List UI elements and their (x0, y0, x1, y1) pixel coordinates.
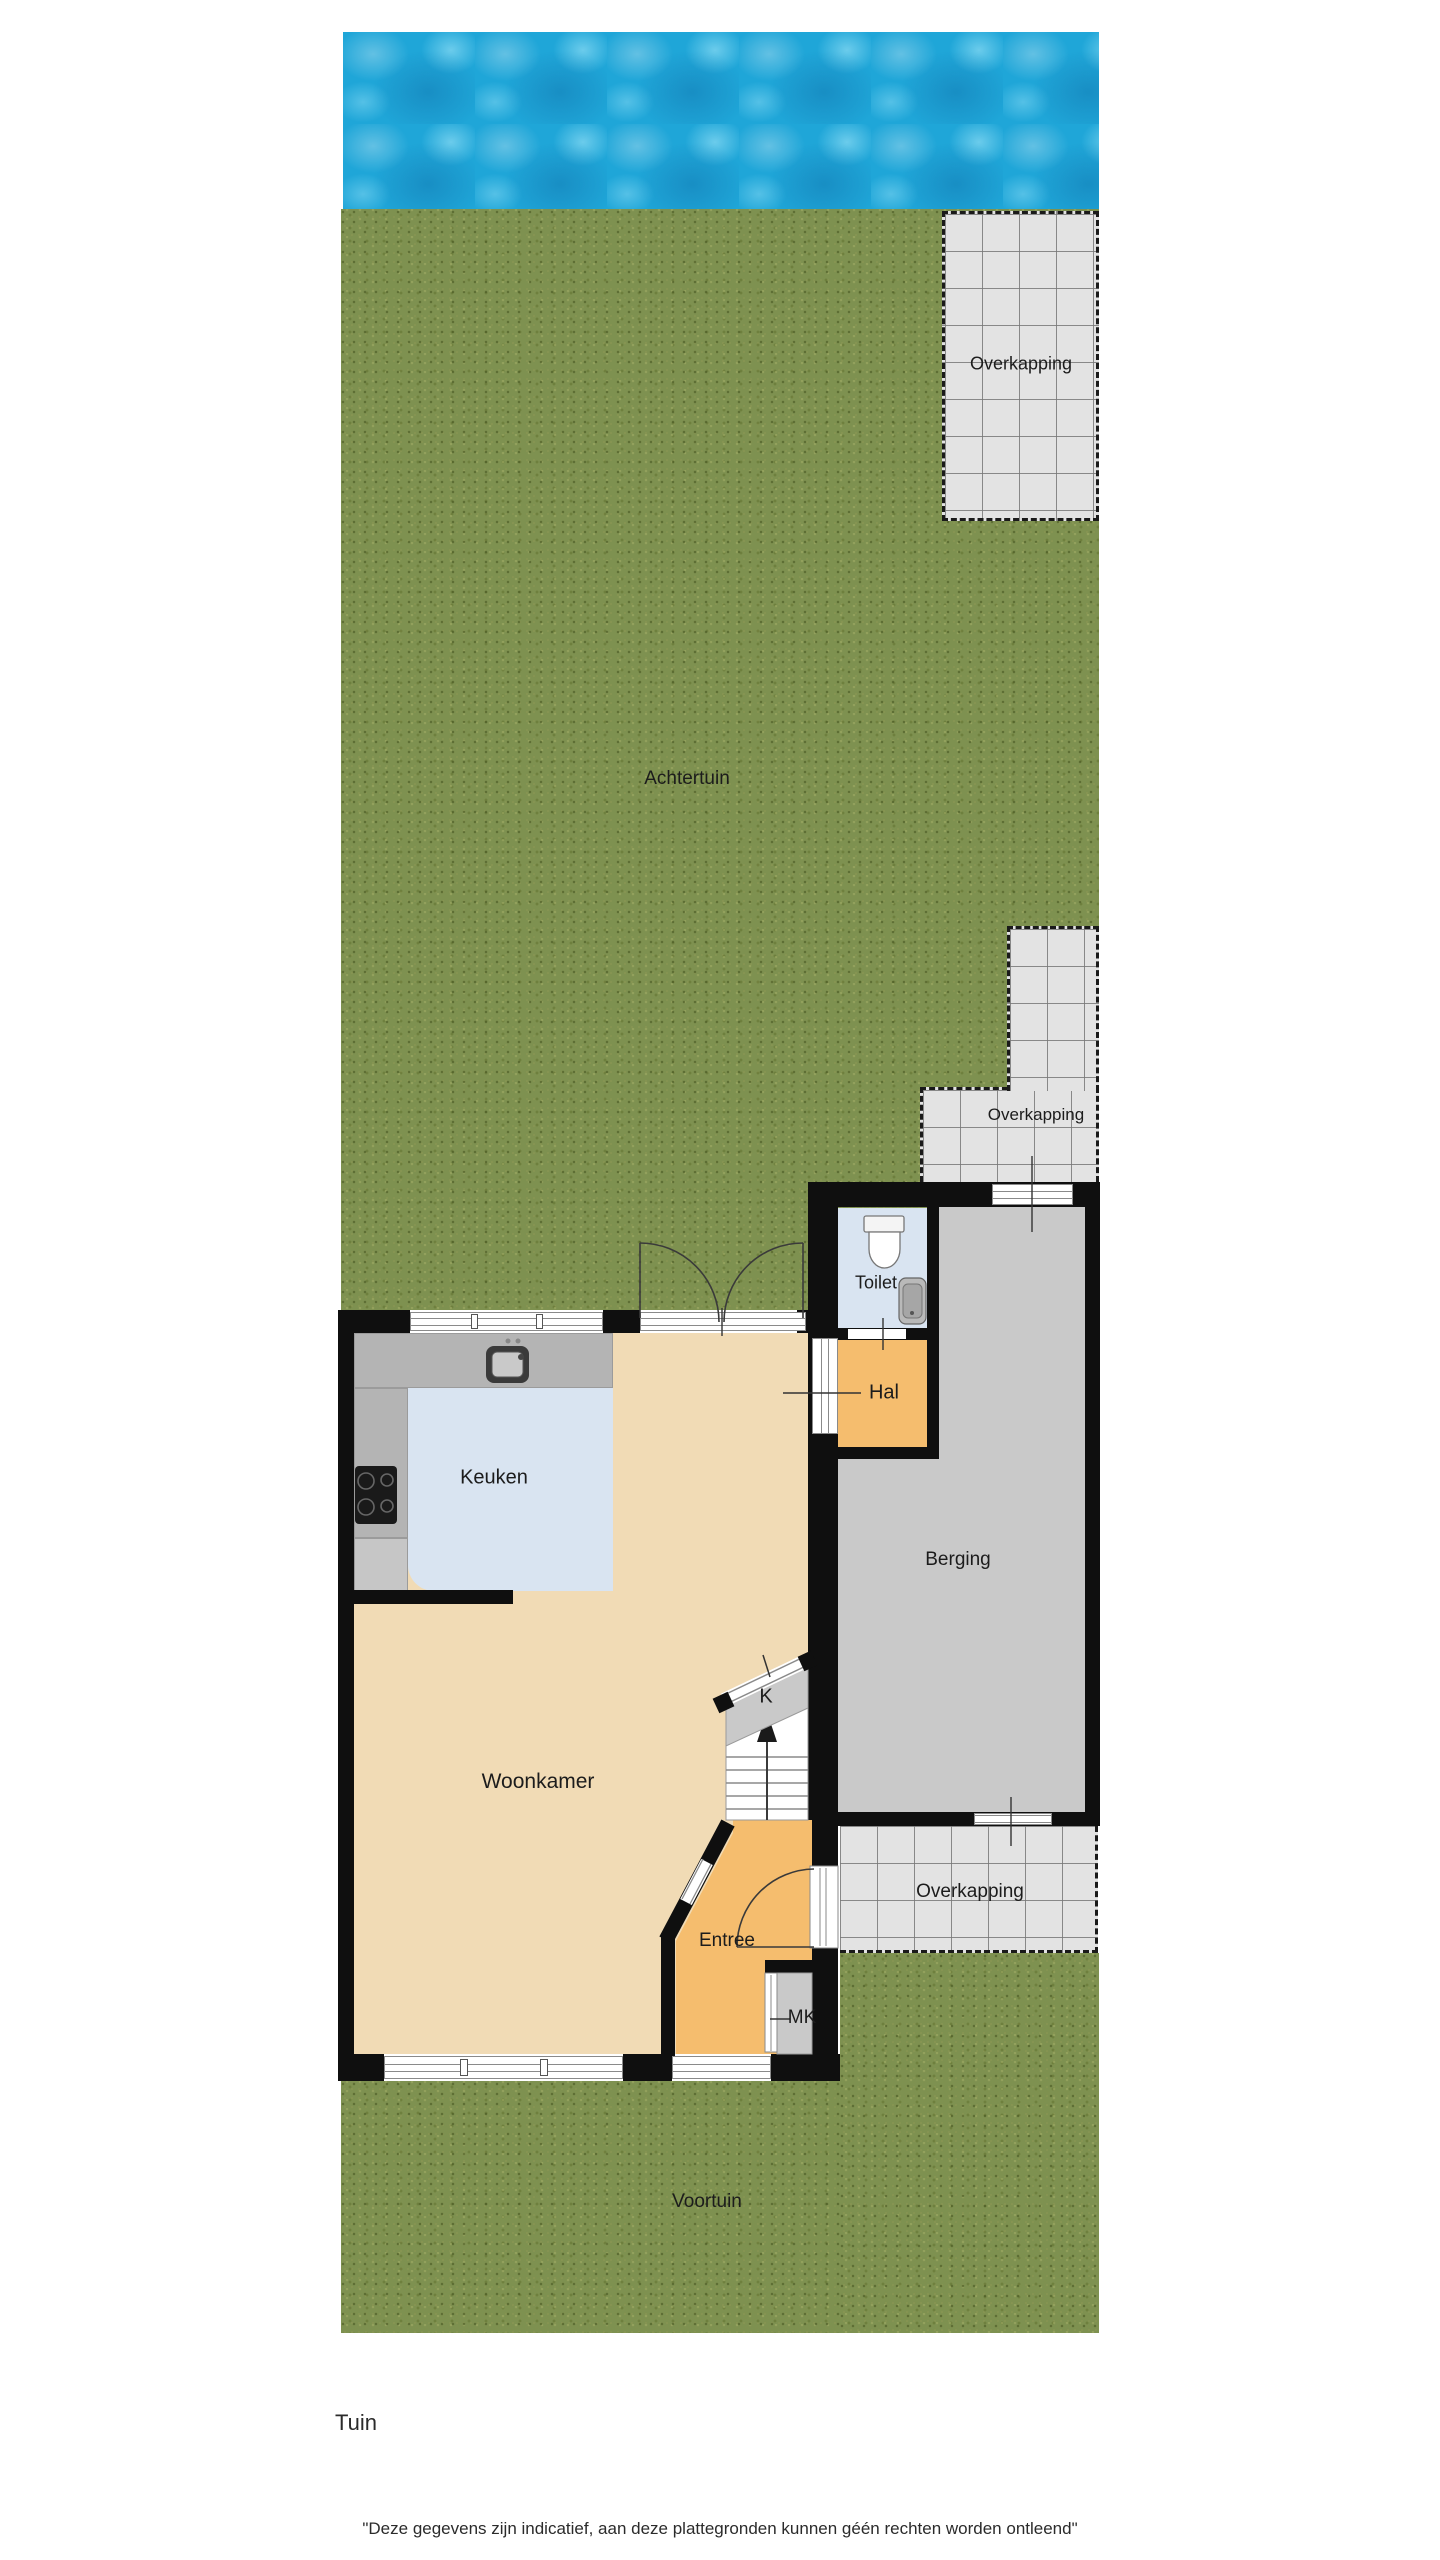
wall-annex-east (1085, 1182, 1100, 1826)
kitchen-counter-left-low (354, 1538, 408, 1591)
rear-double-door-band (640, 1312, 806, 1331)
living-front-window (384, 2056, 623, 2079)
kitchen-counter-left (354, 1388, 408, 1538)
overkapping-top-label: Overkapping (970, 354, 1072, 375)
woonkamer-label: Woonkamer (482, 1770, 595, 1794)
wall-bottom-right (771, 2054, 840, 2081)
keuken-floor (408, 1388, 613, 1591)
wall-annex-bottom (838, 1812, 1100, 1826)
toilet-label: Toilet (855, 1273, 897, 1294)
berging-floor-lower (838, 1459, 1085, 1814)
toilet-floor (838, 1208, 927, 1329)
overkapping-mid-area-wide (920, 1087, 1099, 1182)
wall-hal-bottom (808, 1447, 939, 1459)
hal-west-window (812, 1338, 838, 1434)
voortuin-grass-right (840, 1953, 1099, 2333)
floor-plan-page: Achtertuin Overkapping Overkapping Overk… (0, 0, 1440, 2560)
hal-label: Hal (869, 1382, 899, 1405)
wall-left (338, 1310, 354, 2081)
berging-rear-door (992, 1184, 1073, 1205)
disclaimer-text: "Deze gegevens zijn indicatief, aan deze… (0, 2519, 1440, 2539)
voortuin-label: Voortuin (672, 2191, 742, 2213)
kitchen-rear-window (410, 1312, 603, 1331)
wall-rear-mid (603, 1310, 640, 1333)
stairs-k-label: K (759, 1686, 772, 1709)
toilet-door (848, 1329, 906, 1339)
overkapping-bottom-label: Overkapping (916, 1881, 1024, 1903)
wall-rear-corner-left (338, 1310, 410, 1333)
window-mullion (460, 2059, 468, 2076)
achtertuin-label: Achtertuin (644, 768, 730, 790)
floor-name-label: Tuin (335, 2410, 377, 2436)
wall-bottom-mid (623, 2054, 672, 2081)
keuken-label: Keuken (460, 1467, 528, 1490)
overkapping-mid-label: Overkapping (988, 1105, 1084, 1125)
berging-floor-upper (939, 1207, 1085, 1459)
window-mullion (471, 1314, 478, 1329)
wall-bottom-corner-left (338, 2054, 384, 2081)
berging-label: Berging (925, 1549, 991, 1571)
overkapping-mid-area-narrow (1007, 926, 1099, 1091)
kitchen-counter-top (354, 1333, 613, 1388)
entree-front-window (672, 2056, 771, 2079)
meterkast-label: MK (788, 2007, 817, 2029)
wall-toilet-berging (927, 1207, 939, 1459)
wall-west-annex (808, 1182, 838, 2081)
water-area (343, 32, 1099, 209)
voortuin-grass-left (341, 2081, 840, 2333)
kitchen-stub-wall (352, 1590, 513, 1604)
window-mullion (540, 2059, 548, 2076)
entree-label: Entree (699, 1930, 755, 1952)
window-mullion (536, 1314, 543, 1329)
berging-front-door (974, 1813, 1052, 1825)
